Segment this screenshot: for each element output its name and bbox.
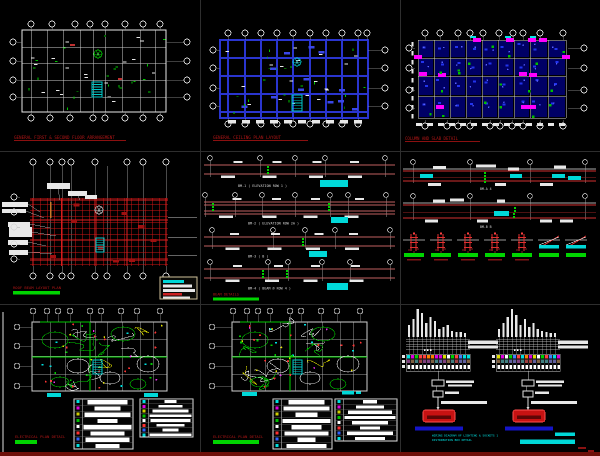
electrical-plan-drawing — [3, 308, 197, 453]
sheet-title: BEAM DETAILS — [213, 293, 239, 297]
beam-caption: BM-A 4 — [480, 187, 492, 191]
beam-caption: BM-B B — [480, 225, 492, 229]
beam-caption: BM-3 ( B ) — [248, 255, 268, 259]
beam-caption: BM-1 ( ELEVATION ROW 1 ) — [238, 184, 287, 188]
ceiling-plan-drawing — [210, 30, 388, 127]
sheet-title: COLUMN AND SLAB DETAIL — [405, 136, 459, 141]
beam-caption: BM-2 ( ELEVATION ROW 2A ) — [248, 222, 299, 226]
sheet-beam-elevations[interactable]: BM-1 ( ELEVATION ROW 1 ) BM-2 ( ELEVATIO… — [200, 152, 400, 304]
footer-strip — [0, 452, 600, 456]
sheet-title: GENERAL FIRST & SECOND FLOOR ARRANGEMENT — [14, 135, 115, 140]
electrical-plan-drawing — [200, 308, 397, 453]
sheet-wiring-diagram[interactable]: WIRING DIAGRAM OF LIGHTING & SOCKETS 1 D… — [400, 304, 600, 456]
sheet-framing-plan[interactable]: ROOF BEAM LAYOUT PLAN — [0, 152, 200, 304]
sheet-electrical-plan-a[interactable]: ELECTRICAL PLAN DETAIL — [0, 304, 200, 456]
beam-caption: BM-4 ( BEAM @ ROW 4 ) — [248, 287, 291, 291]
sheet-title: ELECTRICAL PLAN DETAIL — [15, 434, 66, 439]
sheet-column-slab-plan[interactable]: COLUMN AND SLAB DETAIL — [400, 0, 600, 152]
sheet-electrical-plan-b[interactable]: ELECTRICAL PLAN DETAIL — [200, 304, 400, 456]
sheet-beam-sections[interactable]: BM-A 4 BM-B B — [400, 152, 600, 304]
framing-plan-drawing — [2, 159, 197, 299]
wiring-note: WIRING DIAGRAM OF LIGHTING & SOCKETS 1 — [432, 434, 498, 438]
beam-elevation-drawing — [203, 156, 395, 301]
sheet-ceiling-plan[interactable]: GENERAL CEILING PLAN LAYOUT — [200, 0, 400, 152]
beam-section-drawing — [403, 160, 596, 261]
sheet-title: GENERAL CEILING PLAN LAYOUT — [213, 135, 282, 140]
sheet-title: ELECTRICAL PLAN DETAIL — [213, 434, 264, 439]
column-slab-drawing — [406, 30, 587, 129]
riser-diagram-drawing — [402, 309, 594, 452]
floor-plan-drawing — [10, 21, 190, 121]
cad-sheet-canvas: GENERAL FIRST & SECOND FLOOR ARRANGEMENT… — [0, 0, 600, 456]
wiring-note: DISTRIBUTION BOX DETAIL — [432, 438, 472, 442]
sheet-floor-plan[interactable]: GENERAL FIRST & SECOND FLOOR ARRANGEMENT — [0, 0, 200, 152]
sheet-title: ROOF BEAM LAYOUT PLAN — [13, 285, 62, 290]
